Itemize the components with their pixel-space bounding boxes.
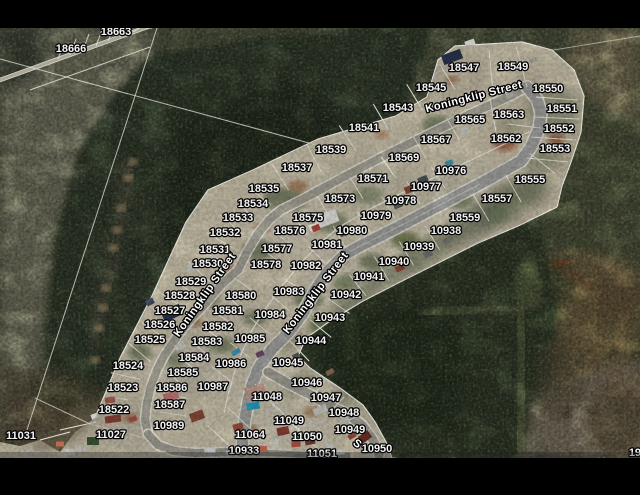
svg-text:18562: 18562 <box>491 133 522 145</box>
svg-text:18580: 18580 <box>226 290 257 302</box>
svg-text:10985: 10985 <box>235 333 266 345</box>
svg-text:11049: 11049 <box>274 415 304 427</box>
svg-text:18581: 18581 <box>213 305 244 317</box>
svg-text:18526: 18526 <box>145 319 176 331</box>
svg-text:10942: 10942 <box>331 289 362 301</box>
svg-text:11050: 11050 <box>292 431 322 443</box>
svg-text:18585: 18585 <box>168 367 199 379</box>
svg-text:18522: 18522 <box>99 404 130 416</box>
svg-text:18553: 18553 <box>540 143 571 155</box>
svg-text:18529: 18529 <box>176 276 207 288</box>
svg-text:18555: 18555 <box>515 174 546 186</box>
svg-text:18666: 18666 <box>56 43 87 55</box>
svg-text:18525: 18525 <box>135 334 166 346</box>
svg-text:10986: 10986 <box>216 358 247 370</box>
svg-text:10943: 10943 <box>315 312 346 324</box>
svg-text:18563: 18563 <box>494 109 525 121</box>
svg-text:18545: 18545 <box>416 82 447 94</box>
svg-text:18582: 18582 <box>203 321 234 333</box>
svg-text:18569: 18569 <box>389 152 420 164</box>
svg-text:18575: 18575 <box>293 212 324 224</box>
svg-text:10938: 10938 <box>431 225 462 237</box>
svg-text:11027: 11027 <box>96 429 126 441</box>
svg-text:18547: 18547 <box>449 62 480 74</box>
svg-text:18559: 18559 <box>450 212 481 224</box>
svg-text:10978: 10978 <box>386 195 417 207</box>
svg-text:10941: 10941 <box>354 271 385 283</box>
svg-text:10947: 10947 <box>311 392 342 404</box>
svg-text:10949: 10949 <box>335 424 366 436</box>
svg-text:18527: 18527 <box>155 305 186 317</box>
svg-text:10981: 10981 <box>312 239 343 251</box>
svg-text:18586: 18586 <box>157 382 188 394</box>
svg-text:10946: 10946 <box>292 377 323 389</box>
svg-text:18557: 18557 <box>482 193 513 205</box>
svg-text:10948: 10948 <box>329 407 360 419</box>
svg-text:18549: 18549 <box>498 61 529 73</box>
svg-text:10987: 10987 <box>198 381 229 393</box>
svg-text:18552: 18552 <box>544 123 575 135</box>
svg-text:18576: 18576 <box>275 225 306 237</box>
svg-text:10989: 10989 <box>154 420 185 432</box>
svg-text:18523: 18523 <box>108 382 139 394</box>
svg-text:11048: 11048 <box>252 391 282 403</box>
svg-text:18587: 18587 <box>155 399 186 411</box>
svg-text:18550: 18550 <box>533 83 564 95</box>
svg-text:18532: 18532 <box>210 227 241 239</box>
svg-text:18584: 18584 <box>179 352 210 364</box>
svg-text:10982: 10982 <box>291 260 322 272</box>
svg-text:18537: 18537 <box>282 162 313 174</box>
svg-text:18528: 18528 <box>165 290 196 302</box>
svg-text:18535: 18535 <box>249 183 280 195</box>
svg-text:18551: 18551 <box>547 103 578 115</box>
svg-text:10940: 10940 <box>379 256 410 268</box>
svg-text:18573: 18573 <box>325 193 356 205</box>
svg-text:18541: 18541 <box>349 122 380 134</box>
svg-text:10939: 10939 <box>404 241 435 253</box>
svg-text:18539: 18539 <box>316 144 347 156</box>
svg-text:18565: 18565 <box>455 114 486 126</box>
svg-text:18567: 18567 <box>421 134 452 146</box>
svg-text:18524: 18524 <box>113 360 144 372</box>
svg-text:18583: 18583 <box>192 336 223 348</box>
svg-text:10944: 10944 <box>296 335 327 347</box>
svg-text:10979: 10979 <box>361 210 392 222</box>
svg-text:18571: 18571 <box>358 173 389 185</box>
svg-text:18543: 18543 <box>383 102 414 114</box>
svg-text:10945: 10945 <box>273 357 304 369</box>
svg-text:18533: 18533 <box>223 212 254 224</box>
svg-text:10976: 10976 <box>436 165 467 177</box>
svg-text:18577: 18577 <box>262 243 293 255</box>
svg-text:18534: 18534 <box>238 198 269 210</box>
svg-text:10984: 10984 <box>255 309 286 321</box>
svg-text:10980: 10980 <box>337 225 368 237</box>
svg-text:10977: 10977 <box>411 181 442 193</box>
svg-text:10983: 10983 <box>274 286 305 298</box>
svg-text:18578: 18578 <box>251 259 282 271</box>
svg-text:11064: 11064 <box>235 429 266 441</box>
svg-text:11031: 11031 <box>6 430 36 442</box>
